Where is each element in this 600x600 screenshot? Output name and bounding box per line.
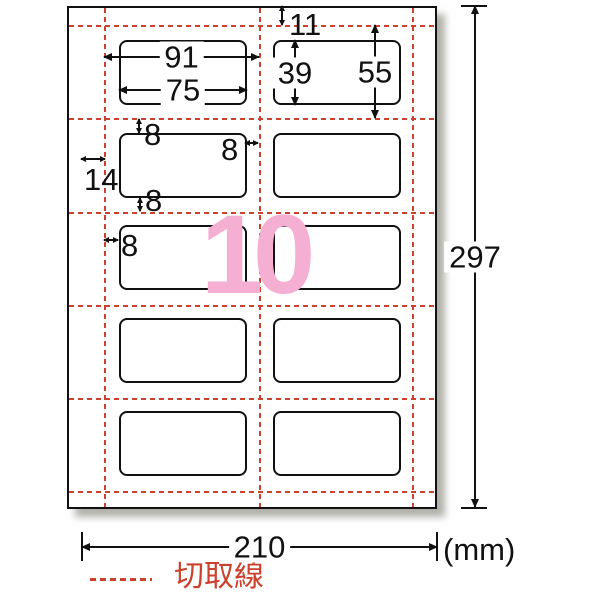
arrowhead-up-icon bbox=[137, 197, 143, 203]
dim-sheet-height: 297 bbox=[474, 6, 476, 507]
dim-value: 91 bbox=[159, 42, 203, 73]
label-cell bbox=[273, 133, 401, 198]
dim-top-margin bbox=[281, 6, 283, 25]
arrowhead-down-icon bbox=[471, 499, 479, 508]
dim-sheet-width: 210 bbox=[82, 546, 437, 548]
arrowhead-down-icon bbox=[279, 20, 285, 26]
dim-value: 55 bbox=[353, 56, 397, 87]
arrowhead-right-icon bbox=[113, 237, 119, 243]
dim-value-side-margin: 14 bbox=[84, 164, 118, 195]
cut-line-horizontal bbox=[69, 491, 435, 493]
arrowhead-left-icon bbox=[103, 237, 109, 243]
dim-label-height: 39 bbox=[294, 40, 296, 105]
legend-cut-line-swatch bbox=[90, 578, 152, 581]
arrowhead-left-icon bbox=[244, 140, 250, 146]
arrowhead-left-icon bbox=[118, 86, 127, 94]
arrowhead-up-icon bbox=[136, 118, 142, 124]
dim-gap-top bbox=[138, 119, 140, 133]
label-cell bbox=[119, 411, 247, 476]
label-cell bbox=[119, 318, 247, 383]
cut-line-horizontal bbox=[69, 398, 435, 400]
label-sheet-diagram: 10 91 75 11 39 55 8 8 bbox=[0, 0, 600, 600]
dim-gap-bottom bbox=[139, 198, 141, 211]
dim-gap-right bbox=[245, 142, 258, 144]
dim-value: 39 bbox=[273, 57, 317, 88]
arrowhead-down-icon bbox=[371, 110, 379, 119]
arrowhead-up-icon bbox=[371, 24, 379, 33]
arrowhead-right-icon bbox=[239, 86, 248, 94]
dim-gap-left bbox=[104, 239, 118, 241]
dim-value-gap-bottom: 8 bbox=[145, 185, 162, 216]
arrowhead-right-icon bbox=[253, 140, 259, 146]
count-watermark: 10 bbox=[201, 199, 316, 311]
dim-value: 297 bbox=[444, 241, 506, 272]
arrowhead-down-icon bbox=[291, 97, 299, 106]
cut-line-vertical bbox=[412, 8, 414, 507]
dim-value-gap-top: 8 bbox=[144, 119, 161, 150]
arrowhead-down-icon bbox=[136, 128, 142, 134]
legend-cut-line-label: 切取線 bbox=[174, 562, 264, 592]
unit-label: (mm) bbox=[443, 534, 515, 565]
dim-value-top-margin: 11 bbox=[289, 9, 321, 40]
dim-value: 75 bbox=[161, 75, 205, 106]
dim-row-pitch: 55 bbox=[374, 25, 376, 118]
arrowhead-up-icon bbox=[279, 5, 285, 11]
dim-value: 210 bbox=[229, 532, 291, 563]
arrowhead-right-icon bbox=[251, 53, 260, 61]
arrowhead-up-icon bbox=[471, 5, 479, 14]
dim-value-gap-right: 8 bbox=[221, 134, 238, 165]
cut-line-horizontal bbox=[69, 25, 435, 27]
label-cell bbox=[273, 411, 401, 476]
arrowhead-left-icon bbox=[81, 543, 90, 551]
cut-line-vertical bbox=[104, 8, 106, 507]
arrowhead-left-icon bbox=[103, 53, 112, 61]
cut-line-horizontal bbox=[69, 118, 435, 120]
dim-side-margin bbox=[81, 158, 105, 160]
label-cell bbox=[273, 318, 401, 383]
arrowhead-down-icon bbox=[137, 206, 143, 212]
arrowhead-right-icon bbox=[429, 543, 438, 551]
dim-value-gap-left: 8 bbox=[121, 230, 138, 261]
dim-label-width: 75 bbox=[119, 89, 247, 91]
dim-column-pitch: 91 bbox=[104, 56, 259, 58]
